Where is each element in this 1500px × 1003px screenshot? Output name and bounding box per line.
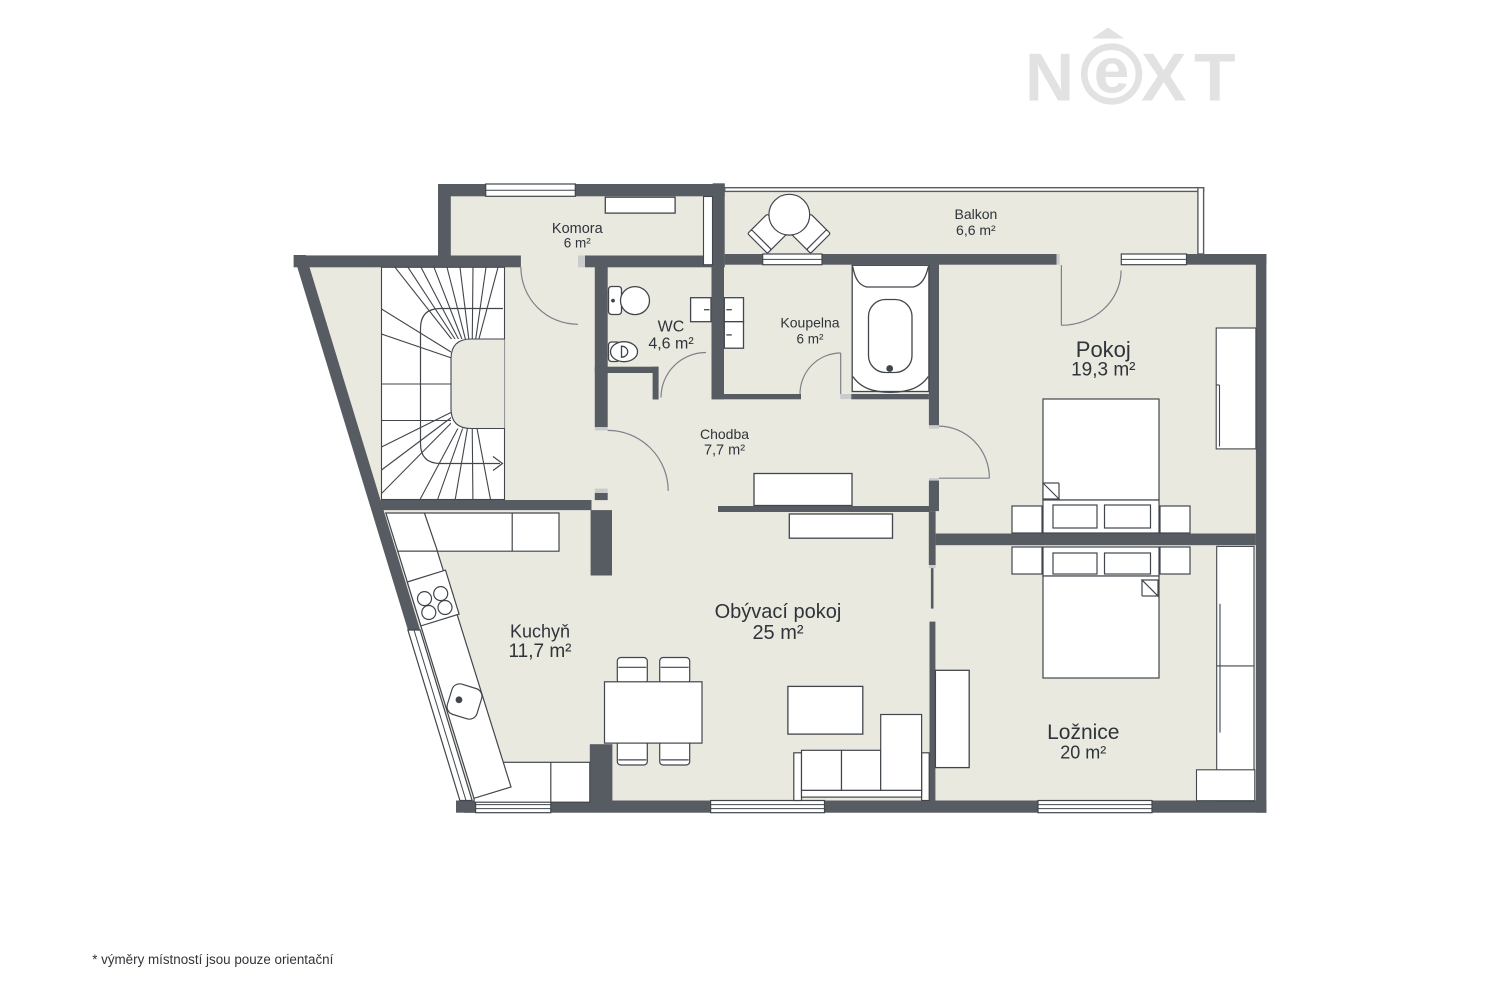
svg-text:7,7 m²: 7,7 m² bbox=[704, 442, 745, 458]
svg-text:Balkon: Balkon bbox=[954, 206, 997, 222]
svg-text:Chodba: Chodba bbox=[700, 426, 749, 442]
svg-text:X: X bbox=[1141, 39, 1186, 115]
svg-text:N: N bbox=[1025, 39, 1074, 115]
svg-text:Obývací pokoj: Obývací pokoj bbox=[715, 601, 842, 623]
svg-text:e: e bbox=[1094, 34, 1130, 106]
svg-text:Koupelna: Koupelna bbox=[780, 315, 839, 331]
svg-text:WC: WC bbox=[658, 318, 685, 335]
svg-text:19,3 m²: 19,3 m² bbox=[1071, 360, 1135, 381]
svg-text:6 m²: 6 m² bbox=[797, 332, 825, 347]
svg-text:11,7 m²: 11,7 m² bbox=[508, 641, 571, 662]
svg-text:* výměry místností jsou pouze: * výměry místností jsou pouze orientační bbox=[92, 952, 333, 967]
svg-text:4,6 m²: 4,6 m² bbox=[648, 335, 694, 352]
svg-text:20 m²: 20 m² bbox=[1060, 743, 1106, 763]
svg-text:25 m²: 25 m² bbox=[752, 622, 803, 644]
svg-text:Pokoj: Pokoj bbox=[1076, 337, 1131, 362]
svg-text:Ložnice: Ložnice bbox=[1047, 721, 1119, 744]
svg-text:6,6 m²: 6,6 m² bbox=[956, 222, 996, 238]
svg-text:T: T bbox=[1194, 39, 1236, 115]
svg-text:6 m²: 6 m² bbox=[564, 236, 592, 251]
svg-text:Kuchyň: Kuchyň bbox=[510, 622, 570, 642]
